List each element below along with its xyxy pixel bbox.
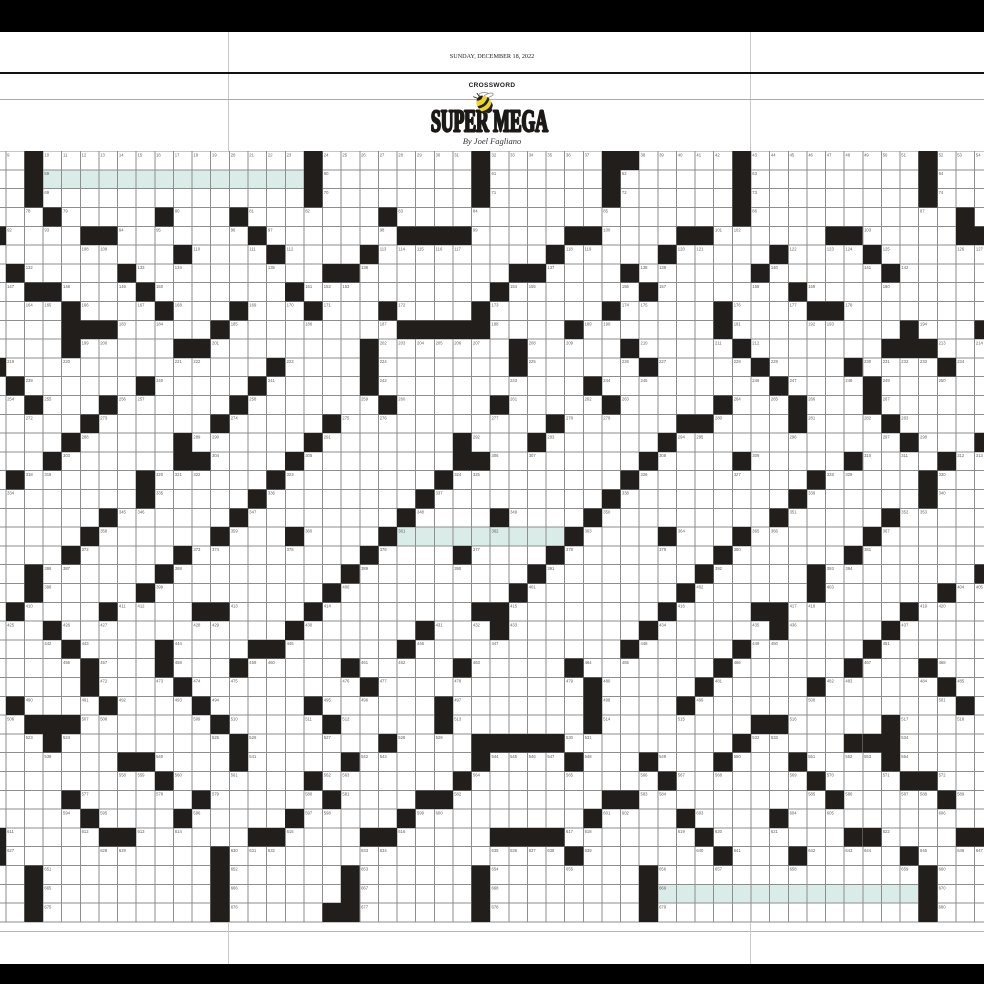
svg-text:491: 491 xyxy=(82,698,90,703)
svg-text:262: 262 xyxy=(585,397,593,402)
svg-text:526: 526 xyxy=(249,735,257,740)
svg-text:361: 361 xyxy=(398,528,406,533)
svg-text:411: 411 xyxy=(119,604,126,609)
svg-text:294: 294 xyxy=(678,434,686,439)
svg-text:311: 311 xyxy=(901,453,908,458)
svg-text:48: 48 xyxy=(845,152,850,157)
svg-text:566: 566 xyxy=(641,773,649,778)
svg-text:586: 586 xyxy=(845,792,853,797)
svg-text:478: 478 xyxy=(454,679,462,684)
svg-text:646: 646 xyxy=(957,848,965,853)
svg-text:377: 377 xyxy=(473,547,481,552)
svg-text:110: 110 xyxy=(193,246,200,251)
svg-text:127: 127 xyxy=(976,246,984,251)
svg-text:616: 616 xyxy=(398,829,406,834)
svg-text:298: 298 xyxy=(920,434,928,439)
svg-text:428: 428 xyxy=(193,622,201,627)
svg-text:166: 166 xyxy=(82,303,90,308)
svg-text:531: 531 xyxy=(585,735,593,740)
svg-text:228: 228 xyxy=(734,359,742,364)
svg-text:665: 665 xyxy=(44,886,52,891)
svg-text:568: 568 xyxy=(715,773,723,778)
svg-text:319: 319 xyxy=(44,472,52,477)
svg-text:660: 660 xyxy=(939,867,947,872)
svg-text:431: 431 xyxy=(436,622,444,627)
svg-text:363: 363 xyxy=(585,528,593,533)
svg-text:544: 544 xyxy=(492,754,500,759)
svg-text:415: 415 xyxy=(510,604,518,609)
svg-text:115: 115 xyxy=(417,246,424,251)
svg-text:615: 615 xyxy=(287,829,295,834)
svg-text:630: 630 xyxy=(231,848,239,853)
svg-text:136: 136 xyxy=(361,265,369,270)
svg-text:640: 640 xyxy=(696,848,704,853)
svg-text:250: 250 xyxy=(939,378,947,383)
svg-text:35: 35 xyxy=(547,152,552,157)
svg-text:496: 496 xyxy=(361,698,369,703)
svg-text:386: 386 xyxy=(44,566,52,571)
svg-text:540: 540 xyxy=(156,754,164,759)
svg-text:638: 638 xyxy=(547,848,555,853)
svg-text:436: 436 xyxy=(790,622,798,627)
svg-text:276: 276 xyxy=(380,416,388,421)
svg-text:378: 378 xyxy=(566,547,574,552)
svg-text:582: 582 xyxy=(454,792,462,797)
svg-text:456: 456 xyxy=(63,660,71,665)
svg-text:381: 381 xyxy=(864,547,872,552)
svg-text:539: 539 xyxy=(44,754,52,759)
svg-text:133: 133 xyxy=(138,265,146,270)
svg-text:140: 140 xyxy=(771,265,779,270)
svg-text:380: 380 xyxy=(734,547,742,552)
svg-text:639: 639 xyxy=(585,848,593,853)
svg-text:265: 265 xyxy=(771,397,779,402)
svg-text:79: 79 xyxy=(63,209,68,214)
svg-text:49: 49 xyxy=(864,152,869,157)
svg-text:669: 669 xyxy=(659,886,667,891)
svg-text:606: 606 xyxy=(939,810,947,815)
svg-text:548: 548 xyxy=(585,754,593,759)
svg-text:637: 637 xyxy=(529,848,537,853)
svg-text:135: 135 xyxy=(268,265,276,270)
svg-text:44: 44 xyxy=(771,152,776,157)
svg-text:373: 373 xyxy=(193,547,201,552)
svg-text:274: 274 xyxy=(231,416,239,421)
svg-text:255: 255 xyxy=(44,397,52,402)
svg-text:445: 445 xyxy=(287,641,295,646)
svg-text:443: 443 xyxy=(82,641,90,646)
svg-text:173: 173 xyxy=(492,303,500,308)
svg-text:208: 208 xyxy=(529,340,537,345)
svg-text:308: 308 xyxy=(659,453,667,458)
svg-text:52: 52 xyxy=(939,152,944,157)
svg-text:401: 401 xyxy=(529,585,537,590)
svg-text:51: 51 xyxy=(901,152,906,157)
svg-text:631: 631 xyxy=(249,848,257,853)
svg-text:604: 604 xyxy=(790,810,798,815)
svg-text:222: 222 xyxy=(193,359,201,364)
svg-text:336: 336 xyxy=(268,491,276,496)
svg-text:258: 258 xyxy=(249,397,257,402)
svg-text:183: 183 xyxy=(119,322,127,327)
svg-text:169: 169 xyxy=(249,303,257,308)
svg-text:16: 16 xyxy=(156,152,161,157)
svg-text:461: 461 xyxy=(361,660,369,665)
svg-text:261: 261 xyxy=(510,397,518,402)
svg-text:485: 485 xyxy=(957,679,965,684)
svg-text:367: 367 xyxy=(883,528,891,533)
svg-text:111: 111 xyxy=(249,246,256,251)
svg-text:416: 416 xyxy=(678,604,686,609)
svg-text:448: 448 xyxy=(641,641,649,646)
svg-text:509: 509 xyxy=(193,716,201,721)
svg-text:629: 629 xyxy=(119,848,127,853)
svg-text:530: 530 xyxy=(566,735,574,740)
svg-text:323: 323 xyxy=(287,472,295,477)
svg-text:651: 651 xyxy=(44,867,52,872)
svg-text:98: 98 xyxy=(380,228,385,233)
svg-text:376: 376 xyxy=(380,547,388,552)
svg-text:34: 34 xyxy=(529,152,534,157)
svg-text:121: 121 xyxy=(696,246,704,251)
svg-text:335: 335 xyxy=(156,491,164,496)
svg-text:418: 418 xyxy=(808,604,816,609)
svg-text:349: 349 xyxy=(510,510,518,515)
svg-text:116: 116 xyxy=(436,246,443,251)
svg-text:226: 226 xyxy=(622,359,630,364)
svg-text:494: 494 xyxy=(212,698,220,703)
svg-text:24: 24 xyxy=(324,152,329,157)
svg-text:247: 247 xyxy=(790,378,798,383)
svg-text:203: 203 xyxy=(398,340,406,345)
svg-text:514: 514 xyxy=(603,716,611,721)
svg-text:21: 21 xyxy=(249,152,254,157)
svg-text:601: 601 xyxy=(603,810,611,815)
svg-text:109: 109 xyxy=(100,246,108,251)
svg-text:541: 541 xyxy=(249,754,257,759)
svg-text:82: 82 xyxy=(305,209,310,214)
svg-text:64: 64 xyxy=(939,171,944,176)
svg-text:159: 159 xyxy=(808,284,816,289)
svg-text:587: 587 xyxy=(901,792,909,797)
svg-text:306: 306 xyxy=(492,453,500,458)
svg-text:239: 239 xyxy=(26,378,34,383)
svg-text:96: 96 xyxy=(231,228,236,233)
svg-text:324: 324 xyxy=(454,472,462,477)
svg-text:17: 17 xyxy=(175,152,180,157)
svg-text:501: 501 xyxy=(939,698,947,703)
svg-text:399: 399 xyxy=(156,585,164,590)
svg-text:206: 206 xyxy=(454,340,462,345)
svg-text:86: 86 xyxy=(752,209,757,214)
svg-text:622: 622 xyxy=(883,829,891,834)
svg-text:246: 246 xyxy=(752,378,760,383)
svg-text:641: 641 xyxy=(734,848,742,853)
svg-text:475: 475 xyxy=(231,679,239,684)
svg-text:102: 102 xyxy=(734,228,742,233)
svg-text:632: 632 xyxy=(268,848,276,853)
svg-text:190: 190 xyxy=(603,322,611,327)
svg-text:477: 477 xyxy=(380,679,388,684)
svg-text:345: 345 xyxy=(119,510,127,515)
svg-text:352: 352 xyxy=(901,510,909,515)
svg-text:69: 69 xyxy=(44,190,49,195)
svg-text:510: 510 xyxy=(231,716,239,721)
svg-text:493: 493 xyxy=(175,698,183,703)
svg-text:617: 617 xyxy=(566,829,574,834)
svg-text:426: 426 xyxy=(63,622,71,627)
svg-text:277: 277 xyxy=(492,416,500,421)
svg-text:635: 635 xyxy=(492,848,500,853)
svg-text:229: 229 xyxy=(771,359,779,364)
svg-text:523: 523 xyxy=(26,735,34,740)
svg-text:125: 125 xyxy=(883,246,891,251)
svg-text:549: 549 xyxy=(659,754,667,759)
svg-text:272: 272 xyxy=(26,416,34,421)
svg-text:372: 372 xyxy=(82,547,90,552)
svg-text:279: 279 xyxy=(603,416,611,421)
svg-text:312: 312 xyxy=(957,453,965,458)
svg-text:512: 512 xyxy=(342,716,350,721)
svg-text:666: 666 xyxy=(231,886,239,891)
svg-text:528: 528 xyxy=(398,735,406,740)
svg-text:653: 653 xyxy=(361,867,369,872)
svg-text:38: 38 xyxy=(641,152,646,157)
svg-text:20: 20 xyxy=(231,152,236,157)
svg-text:156: 156 xyxy=(622,284,630,289)
svg-text:230: 230 xyxy=(864,359,872,364)
svg-text:293: 293 xyxy=(547,434,555,439)
svg-text:23: 23 xyxy=(287,152,292,157)
svg-text:47: 47 xyxy=(827,152,832,157)
svg-text:278: 278 xyxy=(566,416,574,421)
svg-text:459: 459 xyxy=(249,660,257,665)
svg-text:296: 296 xyxy=(790,434,798,439)
svg-text:465: 465 xyxy=(622,660,630,665)
svg-text:22: 22 xyxy=(268,152,273,157)
svg-text:561: 561 xyxy=(231,773,239,778)
svg-text:498: 498 xyxy=(603,698,611,703)
svg-text:543: 543 xyxy=(380,754,388,759)
svg-text:83: 83 xyxy=(398,209,403,214)
svg-text:254: 254 xyxy=(7,397,15,402)
svg-text:351: 351 xyxy=(790,510,798,515)
svg-text:552: 552 xyxy=(845,754,853,759)
svg-text:290: 290 xyxy=(212,434,220,439)
svg-text:243: 243 xyxy=(510,378,518,383)
svg-text:39: 39 xyxy=(659,152,664,157)
svg-text:53: 53 xyxy=(957,152,962,157)
svg-text:150: 150 xyxy=(156,284,164,289)
svg-text:93: 93 xyxy=(44,228,49,233)
svg-text:679: 679 xyxy=(659,904,667,909)
svg-text:390: 390 xyxy=(454,566,462,571)
svg-text:207: 207 xyxy=(473,340,481,345)
svg-text:263: 263 xyxy=(622,397,630,402)
svg-text:656: 656 xyxy=(659,867,667,872)
svg-text:117: 117 xyxy=(454,246,461,251)
svg-text:618: 618 xyxy=(585,829,593,834)
svg-text:393: 393 xyxy=(827,566,835,571)
svg-text:678: 678 xyxy=(492,904,500,909)
svg-text:62: 62 xyxy=(622,171,627,176)
svg-text:571: 571 xyxy=(883,773,891,778)
svg-text:122: 122 xyxy=(790,246,798,251)
svg-text:231: 231 xyxy=(883,359,891,364)
svg-text:63: 63 xyxy=(752,171,757,176)
svg-text:14: 14 xyxy=(119,152,124,157)
svg-text:547: 547 xyxy=(547,754,555,759)
svg-text:462: 462 xyxy=(398,660,406,665)
svg-text:214: 214 xyxy=(976,340,984,345)
svg-text:613: 613 xyxy=(138,829,146,834)
svg-text:449: 449 xyxy=(752,641,760,646)
svg-text:233: 233 xyxy=(920,359,928,364)
svg-text:155: 155 xyxy=(529,284,537,289)
svg-text:433: 433 xyxy=(510,622,518,627)
svg-text:244: 244 xyxy=(603,378,611,383)
svg-text:506: 506 xyxy=(7,716,15,721)
svg-text:602: 602 xyxy=(622,810,630,815)
svg-text:266: 266 xyxy=(808,397,816,402)
svg-text:221: 221 xyxy=(175,359,183,364)
svg-text:434: 434 xyxy=(659,622,667,627)
svg-text:157: 157 xyxy=(659,284,667,289)
svg-text:29: 29 xyxy=(417,152,422,157)
svg-text:201: 201 xyxy=(212,340,220,345)
svg-text:108: 108 xyxy=(82,246,90,251)
svg-text:346: 346 xyxy=(138,510,146,515)
svg-text:149: 149 xyxy=(119,284,127,289)
svg-text:420: 420 xyxy=(939,604,947,609)
svg-text:432: 432 xyxy=(473,622,481,627)
svg-text:497: 497 xyxy=(454,698,462,703)
svg-text:658: 658 xyxy=(790,867,798,872)
svg-text:27: 27 xyxy=(380,152,385,157)
svg-text:97: 97 xyxy=(268,228,273,233)
svg-text:579: 579 xyxy=(212,792,220,797)
svg-text:518: 518 xyxy=(957,716,965,721)
svg-text:553: 553 xyxy=(864,754,872,759)
svg-text:167: 167 xyxy=(138,303,146,308)
svg-text:605: 605 xyxy=(827,810,835,815)
svg-text:114: 114 xyxy=(398,246,405,251)
svg-text:259: 259 xyxy=(361,397,369,402)
svg-text:466: 466 xyxy=(734,660,742,665)
svg-text:232: 232 xyxy=(901,359,909,364)
svg-text:430: 430 xyxy=(305,622,313,627)
svg-text:54: 54 xyxy=(976,152,981,157)
svg-text:534: 534 xyxy=(901,735,909,740)
svg-text:398: 398 xyxy=(44,585,52,590)
svg-text:132: 132 xyxy=(26,265,34,270)
svg-text:675: 675 xyxy=(44,904,52,909)
svg-text:326: 326 xyxy=(641,472,649,477)
svg-text:33: 33 xyxy=(510,152,515,157)
svg-text:87: 87 xyxy=(920,209,925,214)
svg-text:387: 387 xyxy=(63,566,71,571)
svg-text:508: 508 xyxy=(100,716,108,721)
svg-text:283: 283 xyxy=(901,416,909,421)
svg-text:330: 330 xyxy=(939,472,947,477)
svg-text:329: 329 xyxy=(845,472,853,477)
svg-text:567: 567 xyxy=(678,773,686,778)
svg-text:467: 467 xyxy=(864,660,872,665)
svg-text:507: 507 xyxy=(82,716,90,721)
svg-text:580: 580 xyxy=(305,792,313,797)
svg-text:31: 31 xyxy=(454,152,459,157)
svg-text:81: 81 xyxy=(249,209,254,214)
svg-text:177: 177 xyxy=(790,303,798,308)
svg-text:313: 313 xyxy=(976,453,984,458)
svg-text:642: 642 xyxy=(808,848,816,853)
svg-text:321: 321 xyxy=(175,472,183,477)
svg-text:71: 71 xyxy=(492,190,497,195)
svg-text:325: 325 xyxy=(473,472,481,477)
svg-text:148: 148 xyxy=(63,284,71,289)
svg-text:564: 564 xyxy=(473,773,481,778)
svg-text:375: 375 xyxy=(287,547,295,552)
svg-text:598: 598 xyxy=(324,810,332,815)
svg-text:78: 78 xyxy=(26,209,31,214)
svg-text:458: 458 xyxy=(175,660,183,665)
svg-text:192: 192 xyxy=(808,322,816,327)
svg-text:119: 119 xyxy=(585,246,592,251)
svg-text:569: 569 xyxy=(790,773,798,778)
svg-text:652: 652 xyxy=(231,867,239,872)
svg-text:524: 524 xyxy=(63,735,71,740)
svg-text:158: 158 xyxy=(752,284,760,289)
svg-text:499: 499 xyxy=(696,698,704,703)
svg-text:153: 153 xyxy=(342,284,350,289)
svg-text:560: 560 xyxy=(175,773,183,778)
svg-text:554: 554 xyxy=(901,754,909,759)
svg-text:30: 30 xyxy=(436,152,441,157)
svg-text:620: 620 xyxy=(715,829,723,834)
svg-text:40: 40 xyxy=(678,152,683,157)
svg-text:199: 199 xyxy=(82,340,90,345)
svg-text:647: 647 xyxy=(976,848,984,853)
svg-text:442: 442 xyxy=(44,641,52,646)
svg-text:242: 242 xyxy=(380,378,388,383)
svg-text:171: 171 xyxy=(324,303,332,308)
svg-text:61: 61 xyxy=(492,171,497,176)
svg-text:126: 126 xyxy=(957,246,965,251)
svg-text:291: 291 xyxy=(324,434,332,439)
svg-text:310: 310 xyxy=(864,453,872,458)
svg-text:403: 403 xyxy=(827,585,835,590)
svg-text:25: 25 xyxy=(342,152,347,157)
svg-text:483: 483 xyxy=(845,679,853,684)
svg-text:584: 584 xyxy=(659,792,667,797)
svg-text:184: 184 xyxy=(156,322,164,327)
svg-text:303: 303 xyxy=(63,453,71,458)
svg-text:654: 654 xyxy=(492,867,500,872)
svg-text:295: 295 xyxy=(696,434,704,439)
svg-text:476: 476 xyxy=(342,679,350,684)
svg-text:594: 594 xyxy=(63,810,71,815)
svg-text:533: 533 xyxy=(771,735,779,740)
svg-text:260: 260 xyxy=(398,397,406,402)
svg-text:545: 545 xyxy=(510,754,518,759)
svg-text:100: 100 xyxy=(603,228,611,233)
svg-text:92: 92 xyxy=(7,228,12,233)
svg-text:588: 588 xyxy=(920,792,928,797)
svg-text:655: 655 xyxy=(566,867,574,872)
svg-text:194: 194 xyxy=(920,322,928,327)
svg-text:360: 360 xyxy=(305,528,313,533)
svg-text:450: 450 xyxy=(771,641,779,646)
